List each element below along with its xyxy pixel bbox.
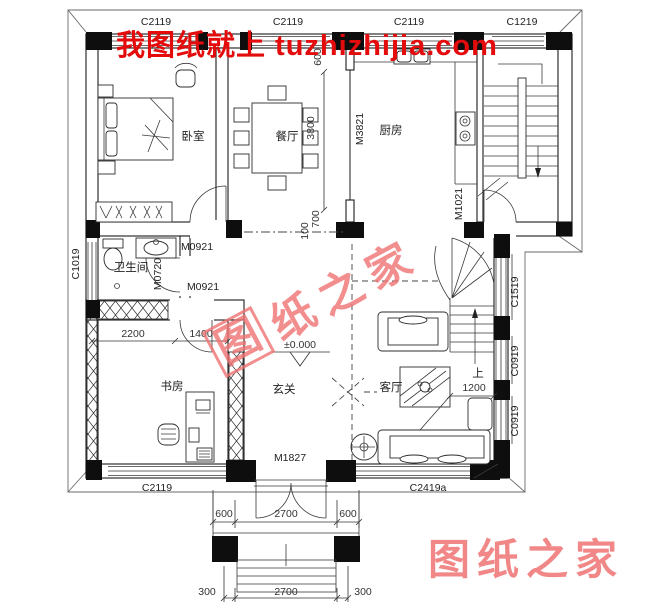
room-label-bathroom: 卫生间 [114, 260, 149, 274]
tag-window-c2119-1: C2119 [141, 16, 171, 28]
dim-elevation: ±0.000 [284, 339, 316, 351]
tag-window-c0919-1: C0919 [509, 345, 521, 376]
stair-up-label: 上 [472, 367, 484, 380]
dim-100: 100 [299, 222, 311, 240]
window-c1219-top [492, 35, 544, 47]
tag-door-m0921-2: M0921 [187, 281, 219, 293]
tag-door-m0720: M0720 [152, 258, 164, 290]
tag-door-m3821: M3821 [354, 113, 366, 145]
floor-plan-page: 卧室 餐厅 厨房 卫生间 书房 玄关 客厅 C2119 C2119 C2119 … [0, 0, 650, 611]
dim-step-2700: 2700 [274, 586, 298, 598]
dim-700: 700 [310, 210, 322, 228]
furniture-study [158, 392, 214, 462]
tag-window-c2419a: C2419a [410, 482, 447, 494]
dim-2200: 2200 [121, 328, 145, 340]
tag-window-c1219: C1219 [507, 16, 538, 28]
dim-porch-600-right: 600 [339, 508, 357, 520]
tag-door-m0921-1: M0921 [181, 241, 213, 253]
dim-step-300-left: 300 [198, 586, 216, 598]
window-c2419a-bottom [356, 465, 470, 477]
dim-porch-600-left: 600 [215, 508, 233, 520]
room-label-kitchen: 厨房 [380, 124, 403, 137]
window-c2119-top-1 [112, 35, 196, 47]
dim-3800: 3800 [305, 116, 317, 140]
window-c2119-bottom [108, 465, 226, 477]
dim-1400: 1400 [189, 328, 213, 340]
room-label-study: 书房 [161, 380, 184, 393]
window-c1019-left [87, 242, 97, 300]
tag-window-c2119-3: C2119 [394, 16, 424, 28]
room-label-living: 客厅 [380, 380, 403, 394]
room-label-bedroom: 卧室 [182, 129, 205, 143]
floor-plan-canvas: 卧室 餐厅 厨房 卫生间 书房 玄关 客厅 C2119 C2119 C2119 … [0, 0, 650, 611]
room-label-foyer: 玄关 [273, 382, 296, 396]
dim-porch-2700: 2700 [274, 508, 298, 520]
door-stairwell [484, 190, 516, 222]
room-label-dining: 餐厅 [276, 129, 299, 143]
dim-600-top: 600 [312, 48, 324, 66]
tag-window-c1519: C1519 [509, 276, 521, 307]
tag-window-c1019: C1019 [70, 248, 82, 279]
dim-1200: 1200 [462, 382, 486, 394]
dim-step-300-right: 300 [354, 586, 372, 598]
tag-door-m1827: M1827 [274, 452, 306, 464]
window-c2119-top-2 [252, 35, 330, 47]
window-c2119-top-3 [368, 35, 452, 47]
tag-door-m1021: M1021 [453, 188, 465, 220]
furniture-kitchen [354, 49, 477, 185]
up-arrow [472, 308, 478, 364]
tag-window-c2119-4: C2119 [142, 482, 172, 494]
stair-main [478, 64, 558, 200]
tag-window-c2119-2: C2119 [273, 16, 303, 28]
tag-window-c0919-2: C0919 [509, 405, 521, 436]
